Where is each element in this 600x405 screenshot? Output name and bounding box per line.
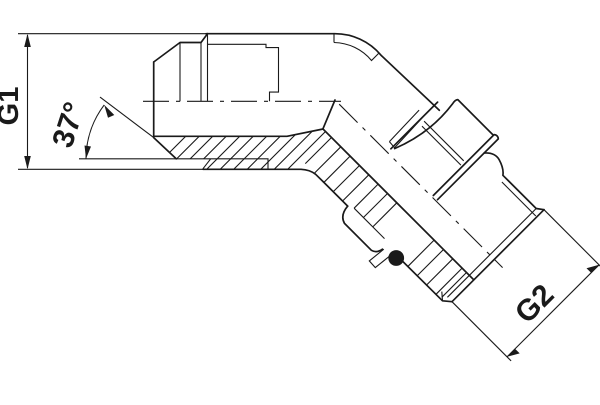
svg-text:G1: G1: [0, 87, 25, 126]
